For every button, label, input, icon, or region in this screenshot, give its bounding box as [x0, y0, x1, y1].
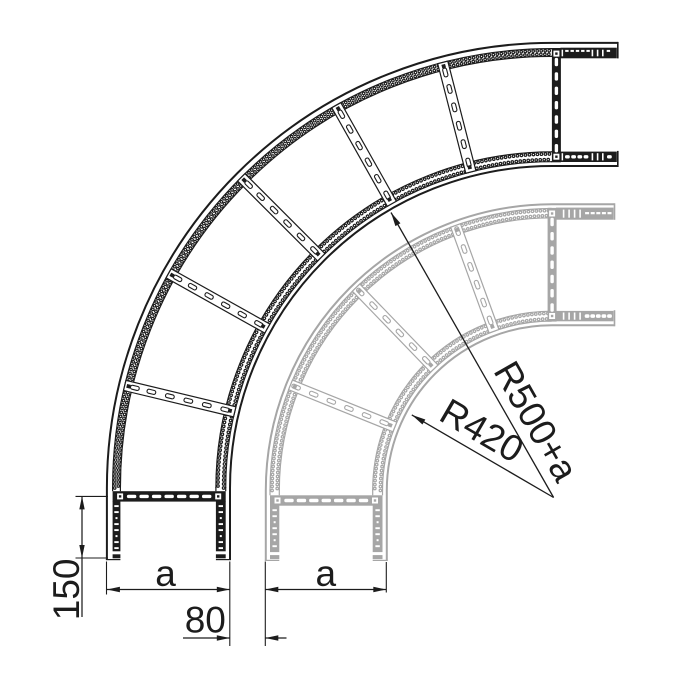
svg-text:a: a — [155, 553, 176, 594]
svg-text:80: 80 — [185, 599, 226, 640]
svg-text:150: 150 — [46, 559, 87, 621]
svg-text:a: a — [316, 553, 337, 594]
